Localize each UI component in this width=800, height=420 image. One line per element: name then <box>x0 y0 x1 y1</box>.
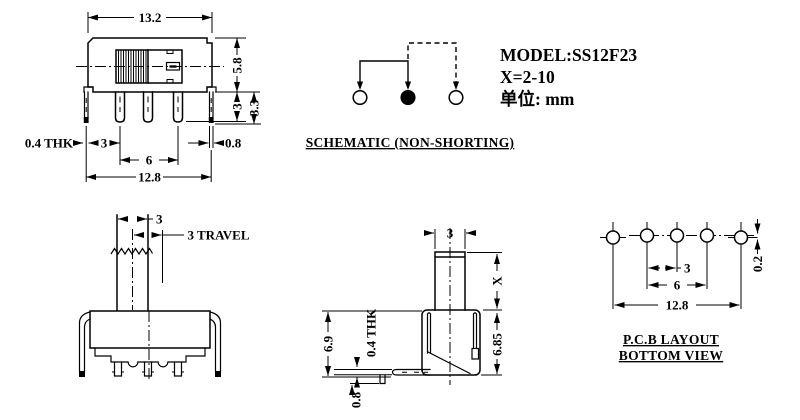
model-label: MODEL:SS12F23 <box>500 45 637 65</box>
technical-drawing: 13.2 5.8 3 3.3 0.4 THK 3 0.8 6 <box>0 0 800 420</box>
header-text: MODEL:SS12F23 X=2-10 单位: mm <box>500 45 637 109</box>
front-view: 13.2 5.8 3 3.3 0.4 THK 3 0.8 6 <box>25 10 262 185</box>
terminal-common-filled <box>401 91 415 105</box>
dim-knob-width-label: 3 <box>447 226 454 241</box>
schematic-label: SCHEMATIC (NON-SHORTING) <box>306 135 515 150</box>
dim-knob-width-label: 3 <box>156 212 163 227</box>
pcb-layout-label: P.C.B LAYOUT <box>623 332 719 347</box>
arrow-pole-3 <box>453 82 459 91</box>
dim-body-height-label: 6.9 <box>321 335 336 352</box>
dim-pin-below-label: 0.8 <box>349 391 364 408</box>
schematic-view: SCHEMATIC (NON-SHORTING) <box>306 43 515 150</box>
pcb-view: 3 6 12.8 0.2 P.C.B LAYOUT BOTTOM VIEW <box>600 219 765 363</box>
unit-label: 单位: mm <box>500 89 575 109</box>
dim-width-label: 13.2 <box>139 10 162 25</box>
pcb-hole-1 <box>607 231 620 244</box>
dim-span-label: 12.8 <box>666 298 689 313</box>
dim-span-label: 12.8 <box>138 170 161 185</box>
actuator-view: 3 3 TRAVEL <box>79 212 250 381</box>
terminal-open-left <box>353 91 367 105</box>
pcb-hole-3 <box>671 229 684 242</box>
dim-bracket-length-label: 3.3 <box>247 99 262 116</box>
x-spec-label: X=2-10 <box>500 67 555 87</box>
dim-thickness-label: 0.4 THK <box>364 308 379 357</box>
dim-outer-pitch-label: 6 <box>146 153 153 168</box>
arrow-pole-2 <box>405 82 411 91</box>
profile-view: 3 6.9 0.4 THK 0.8 X 6.85 <box>321 226 505 409</box>
dim-knob-height-label: X <box>490 276 505 286</box>
dim-pin-length-label: 3 <box>230 103 245 110</box>
dim-thickness-label: 0.4 THK <box>25 136 74 151</box>
dim-height-label: 5.8 <box>230 57 245 74</box>
dim-offset-label: 0.2 <box>750 256 765 272</box>
dim-hole-pitch-label: 3 <box>684 261 691 276</box>
dim-pin-pitch-label: 3 <box>101 136 108 151</box>
dim-travel-label: 3 TRAVEL <box>188 228 250 243</box>
pcb-hole-4 <box>701 229 714 242</box>
bottom-view-label: BOTTOM VIEW <box>619 348 724 363</box>
terminal-open-right <box>449 91 463 105</box>
dim-outer-pitch-label: 6 <box>674 278 681 293</box>
pcb-hole-5 <box>735 231 748 244</box>
dim-total-height-label: 6.85 <box>490 333 505 356</box>
arrow-pole-1 <box>357 82 363 91</box>
pcb-hole-2 <box>641 229 654 242</box>
dim-tab-width-label: 0.8 <box>225 136 242 151</box>
